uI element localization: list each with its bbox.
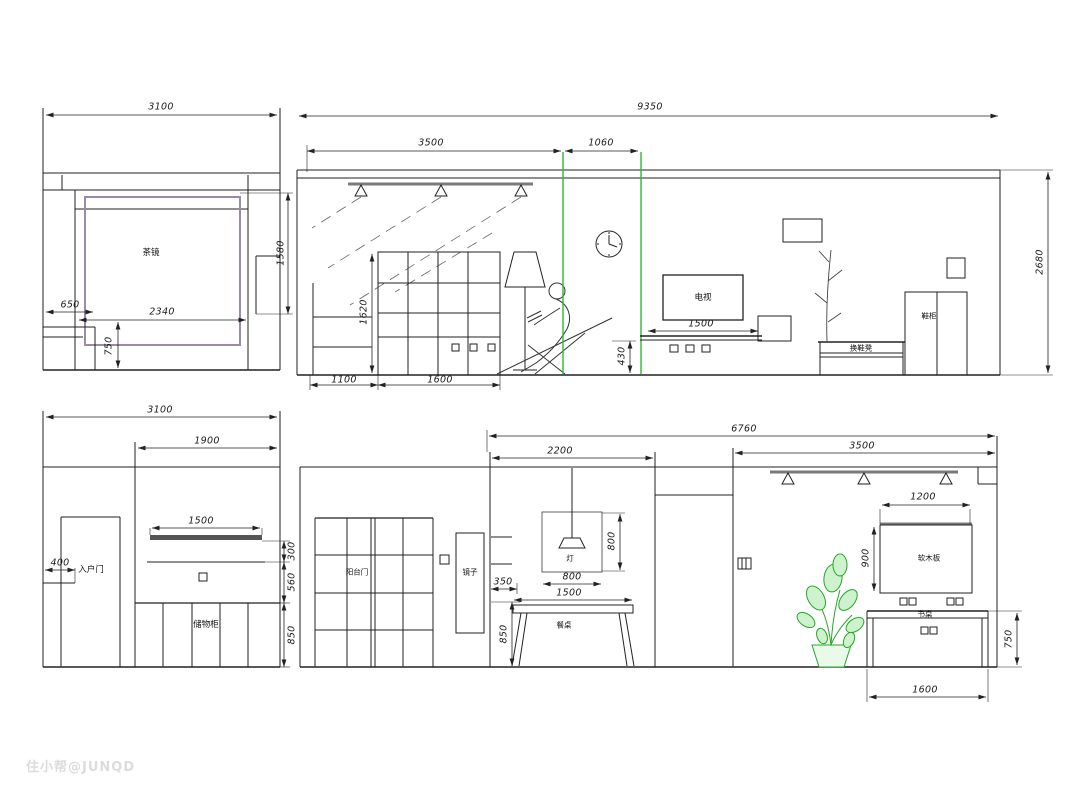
dining-table bbox=[512, 605, 634, 666]
label-mirror-tall: 镜子 bbox=[463, 567, 478, 578]
dim-mirror-height: 1580 bbox=[276, 240, 287, 265]
socket-icon bbox=[909, 598, 916, 605]
dining-mirror-elevation bbox=[43, 108, 293, 370]
label-desk: 书桌 bbox=[918, 609, 933, 620]
label-shoe-bench: 换鞋凳 bbox=[850, 343, 873, 354]
dim-pendant-height: 800 bbox=[607, 531, 618, 550]
dim-living-total: 9350 bbox=[637, 102, 662, 113]
dim-desk-height: 750 bbox=[1004, 629, 1015, 648]
mirror-panel bbox=[85, 197, 240, 345]
entry-elevation bbox=[43, 411, 290, 667]
dim-chaise-height: 430 bbox=[617, 346, 628, 365]
dim-pendant-width: 800 bbox=[562, 572, 581, 583]
socket-icon bbox=[199, 573, 207, 581]
branch-decor-icon bbox=[815, 250, 842, 341]
socket-icon bbox=[956, 598, 963, 605]
dim-entry-560: 560 bbox=[287, 572, 298, 591]
dim-wall-return: 350 bbox=[493, 577, 512, 588]
dim-entry-300: 300 bbox=[287, 541, 298, 560]
dim-tv-bench-width: 1500 bbox=[688, 319, 713, 330]
pendant-lamp-icon bbox=[559, 468, 585, 548]
dim-table-width: 1500 bbox=[556, 588, 581, 599]
person-reading-figure bbox=[497, 283, 612, 374]
floating-shelf bbox=[150, 535, 262, 540]
watermark: 住小帮@JUNQD bbox=[26, 756, 135, 775]
dim-study-total: 6760 bbox=[731, 424, 756, 435]
dim-cabinet-width: 1100 bbox=[331, 375, 356, 386]
dim-dining-width: 2200 bbox=[547, 446, 572, 457]
mirror-tall bbox=[456, 533, 484, 633]
study-elevation bbox=[487, 430, 1022, 702]
label-storage-cabinet: 储物柜 bbox=[193, 618, 219, 630]
label-balcony-door: 阳台门 bbox=[346, 567, 369, 578]
dim-board-width: 1200 bbox=[910, 492, 935, 503]
dim-entry-cabinet-height: 850 bbox=[287, 625, 298, 644]
socket-icon bbox=[947, 598, 954, 605]
elevation-linework bbox=[0, 0, 1080, 795]
entry-door bbox=[61, 517, 120, 667]
socket-icon bbox=[930, 627, 937, 634]
plant-icon bbox=[794, 554, 866, 667]
balcony-sliding-door bbox=[315, 518, 433, 667]
floor-lamp-icon bbox=[505, 252, 545, 370]
dim-mirrorwall-total: 3100 bbox=[148, 102, 173, 113]
socket-icon bbox=[921, 627, 928, 634]
dim-shelf-height: 850 bbox=[499, 624, 510, 643]
living-room-elevation bbox=[297, 116, 1053, 390]
switch-icon bbox=[738, 558, 751, 569]
dim-door-offset: 400 bbox=[50, 558, 69, 569]
dim-ceiling-right: 1060 bbox=[588, 138, 613, 149]
dim-study-width: 3500 bbox=[849, 441, 874, 452]
label-tv: 电视 bbox=[694, 291, 711, 303]
dim-entry-shelf-width: 1500 bbox=[188, 516, 213, 527]
dim-bookshelf-height: 1620 bbox=[359, 299, 370, 324]
spotlight-icons bbox=[782, 473, 952, 484]
small-frame bbox=[947, 258, 965, 278]
picture-frame bbox=[783, 219, 822, 242]
label-shoe-cabinet: 鞋柜 bbox=[922, 311, 937, 322]
wall-box-shelf bbox=[758, 316, 791, 341]
label-mirror: 茶镜 bbox=[142, 246, 159, 258]
dim-bookshelf-width: 1600 bbox=[427, 375, 452, 386]
balcony-dining-elevation bbox=[300, 448, 997, 667]
socket-icon bbox=[900, 598, 907, 605]
light-beam-lines bbox=[312, 197, 521, 305]
storage-cabinet bbox=[135, 603, 280, 667]
dim-desk-width: 1600 bbox=[912, 685, 937, 696]
wall-clock-icon bbox=[596, 231, 622, 257]
dim-wall-height: 2680 bbox=[1035, 249, 1046, 274]
dim-mirror-width: 2340 bbox=[149, 307, 174, 318]
dim-counter-height: 750 bbox=[104, 336, 115, 355]
label-cork-board: 软木板 bbox=[918, 553, 941, 564]
label-entry-door: 入户门 bbox=[78, 563, 104, 575]
bookshelf bbox=[378, 252, 500, 375]
label-dining-table: 餐桌 bbox=[557, 620, 572, 631]
dim-ceiling-left: 3500 bbox=[418, 138, 443, 149]
switch-icon bbox=[440, 555, 449, 564]
dim-entry-right-section: 1900 bbox=[194, 436, 219, 447]
dim-mirrorwall-offset: 650 bbox=[60, 300, 79, 311]
dim-board-height: 900 bbox=[861, 548, 872, 567]
cad-elevation-sheet: 3100 650 2340 750 1580 茶镜 9350 3500 1060… bbox=[0, 0, 1080, 795]
spotlight-icons bbox=[355, 185, 527, 196]
label-pendant: 灯 bbox=[566, 553, 574, 564]
shoe-cabinet bbox=[905, 292, 967, 375]
dim-entry-total: 3100 bbox=[147, 405, 172, 416]
